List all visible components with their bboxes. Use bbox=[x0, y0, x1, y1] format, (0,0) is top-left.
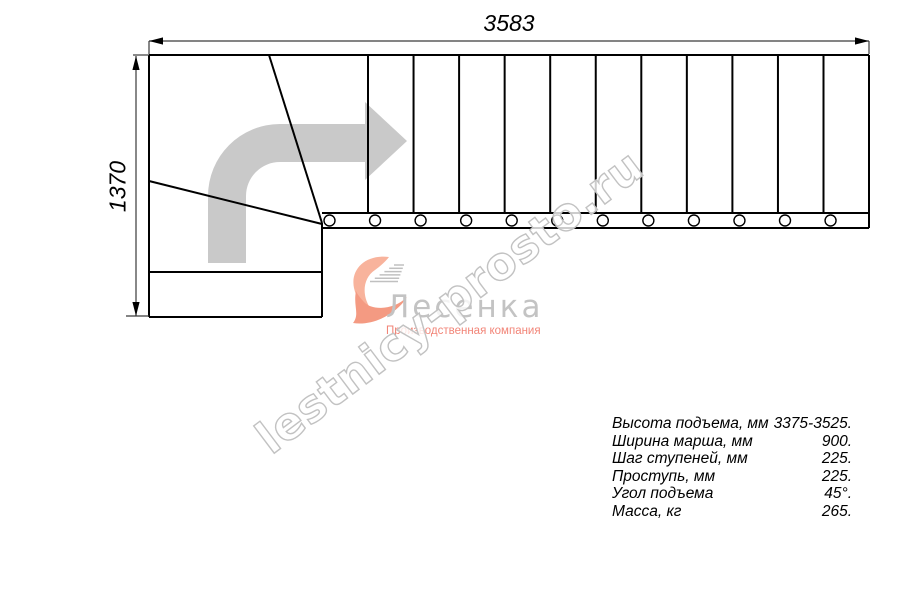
stringer-circle bbox=[688, 215, 699, 226]
spec-row: Угол подъема 45°. bbox=[612, 485, 852, 503]
spec-value: 3375-3525. bbox=[774, 415, 852, 433]
spec-value: 265. bbox=[822, 503, 852, 521]
spec-label: Шаг ступеней, мм bbox=[612, 450, 748, 468]
stringer-circle bbox=[461, 215, 472, 226]
direction-arrow-icon bbox=[208, 102, 407, 263]
stringer-circle bbox=[324, 215, 335, 226]
spec-row: Масса, кг 265. bbox=[612, 503, 852, 521]
spec-value: 225. bbox=[822, 450, 852, 468]
spec-value: 900. bbox=[822, 433, 852, 451]
spec-row: Шаг ступеней, мм 225. bbox=[612, 450, 852, 468]
spec-label: Масса, кг bbox=[612, 503, 681, 521]
spec-label: Угол подъема bbox=[612, 485, 713, 503]
logo-tagline: Производственная компания bbox=[386, 326, 541, 338]
stringer-circle bbox=[552, 215, 563, 226]
logo-company-name: Лесенка bbox=[386, 292, 544, 323]
stringer-circle bbox=[506, 215, 517, 226]
company-logo: Лесенка Производственная компания bbox=[349, 253, 609, 343]
spec-value: 45°. bbox=[824, 485, 852, 503]
stringer-circles-group bbox=[324, 215, 836, 226]
spec-table: Высота подъема, мм 3375-3525. Ширина мар… bbox=[612, 415, 852, 521]
spec-row: Высота подъема, мм 3375-3525. bbox=[612, 415, 852, 433]
stringer-circle bbox=[825, 215, 836, 226]
spec-row: Ширина марша, мм 900. bbox=[612, 433, 852, 451]
stringer-circle bbox=[780, 215, 791, 226]
tread-lines-group bbox=[368, 55, 824, 213]
spec-label: Высота подъема, мм bbox=[612, 415, 769, 433]
stair-drawing-page: 3583 1370 Лесенка Производственная компа… bbox=[0, 0, 900, 600]
spec-row: Проступь, мм 225. bbox=[612, 468, 852, 486]
dimension-left-label: 1370 bbox=[107, 107, 130, 267]
spec-label: Ширина марша, мм bbox=[612, 433, 753, 451]
stringer-circle bbox=[597, 215, 608, 226]
stringer-circle bbox=[415, 215, 426, 226]
stringer-circle bbox=[370, 215, 381, 226]
spec-value: 225. bbox=[822, 468, 852, 486]
stringer-circle bbox=[643, 215, 654, 226]
spec-label: Проступь, мм bbox=[612, 468, 715, 486]
dimension-top-label: 3583 bbox=[429, 12, 589, 35]
stringer-circle bbox=[734, 215, 745, 226]
